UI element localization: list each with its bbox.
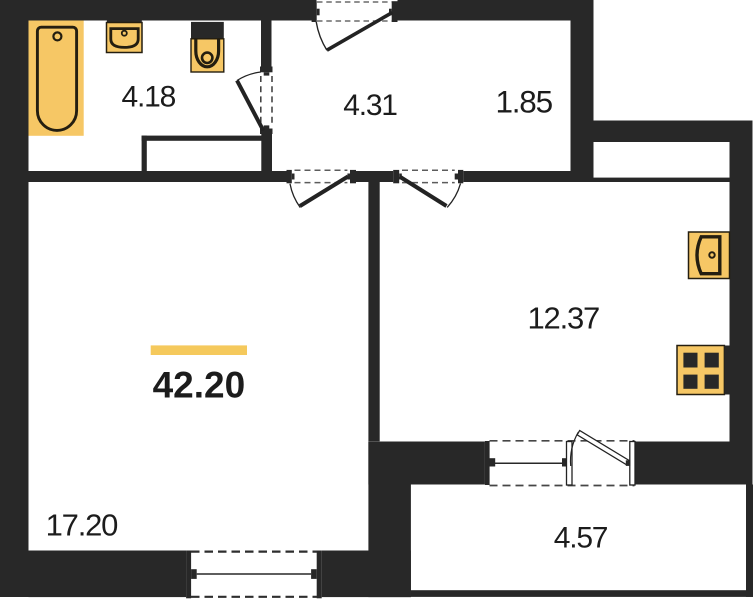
svg-text:1.85: 1.85 — [495, 84, 552, 120]
svg-text:4.18: 4.18 — [122, 81, 176, 114]
svg-text:4.31: 4.31 — [343, 89, 397, 122]
svg-text:42.20: 42.20 — [153, 364, 246, 405]
svg-text:12.37: 12.37 — [528, 301, 600, 336]
svg-text:17.20: 17.20 — [46, 507, 119, 542]
svg-text:4.57: 4.57 — [554, 522, 608, 555]
